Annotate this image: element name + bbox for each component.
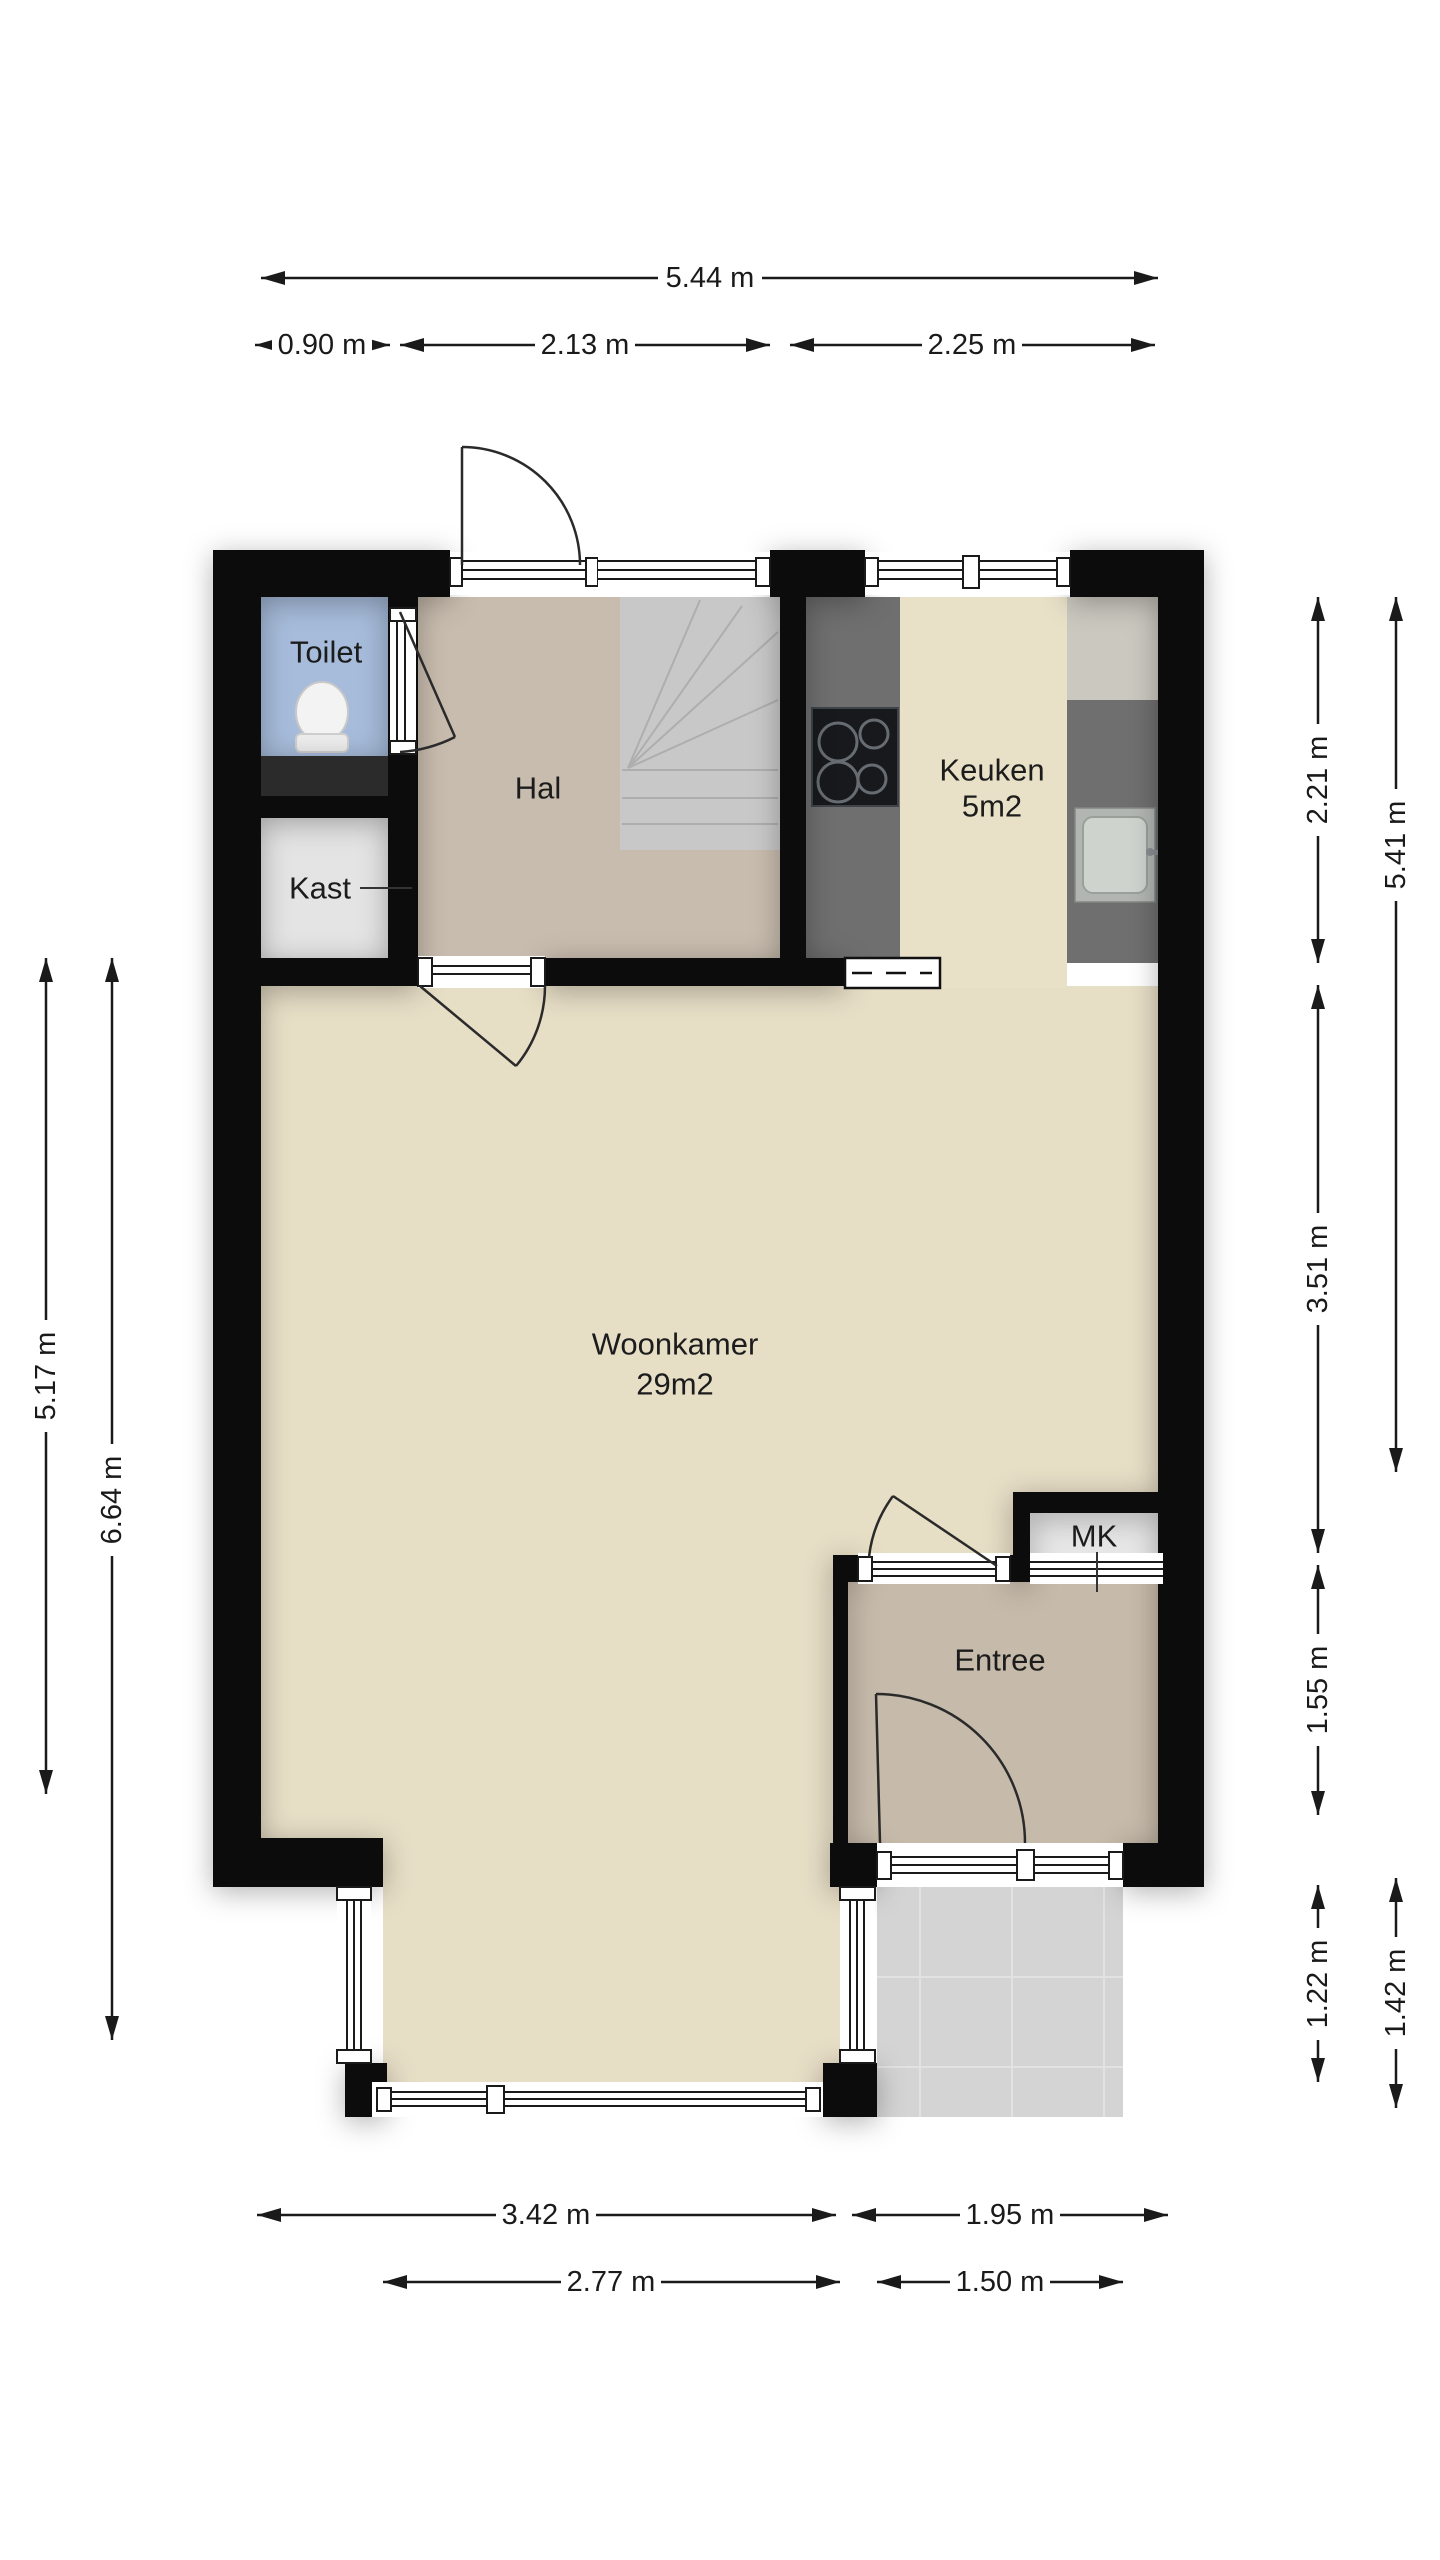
entree-front-door	[877, 1843, 1123, 1887]
floorplan-drawing: Toilet Hal Kast Keuken 5m2 Woonkamer 29m…	[0, 0, 1440, 2560]
keuken-window	[865, 552, 1070, 595]
label-woonkamer-area: 29m2	[636, 1367, 714, 1402]
extension-bottom-window	[372, 2082, 823, 2117]
hal-window	[598, 552, 770, 595]
svg-text:1.95 m: 1.95 m	[966, 2199, 1055, 2231]
front-door-opening	[450, 552, 598, 595]
patio	[877, 1887, 1123, 2117]
svg-text:2.13 m: 2.13 m	[541, 329, 630, 361]
room-entree	[848, 1582, 1158, 1843]
svg-text:5.17 m: 5.17 m	[30, 1332, 62, 1421]
building: Toilet Hal Kast Keuken 5m2 Woonkamer 29m…	[213, 447, 1204, 2117]
extension-left-window	[337, 1887, 371, 2063]
svg-text:1.22 m: 1.22 m	[1302, 1940, 1334, 2029]
sink-icon	[1075, 808, 1164, 902]
label-entree: Entree	[954, 1643, 1045, 1678]
stove-icon	[812, 708, 898, 806]
hal-door-opening	[418, 956, 545, 988]
label-keuken-area: 5m2	[962, 789, 1022, 824]
entree-interior-window	[858, 1553, 1010, 1584]
svg-text:5.41 m: 5.41 m	[1380, 801, 1412, 890]
room-woonkamer	[261, 986, 1158, 1492]
toilet-door	[390, 608, 416, 754]
stairs	[620, 597, 780, 850]
label-hal: Hal	[515, 771, 562, 806]
svg-text:5.44 m: 5.44 m	[666, 262, 755, 294]
dim-top-toilet: 0.90 m	[255, 327, 390, 363]
extension-right-window	[840, 1887, 875, 2063]
label-toilet: Toilet	[290, 635, 363, 670]
svg-text:1.50 m: 1.50 m	[956, 2266, 1045, 2298]
svg-text:1.42 m: 1.42 m	[1380, 1949, 1412, 2038]
svg-text:3.42 m: 3.42 m	[502, 2199, 591, 2231]
keuken-slider-door	[845, 958, 940, 988]
svg-text:2.25 m: 2.25 m	[928, 329, 1017, 361]
svg-text:6.64 m: 6.64 m	[96, 1456, 128, 1545]
toilet-icon	[296, 682, 348, 752]
cabinet-top-right	[1067, 597, 1158, 700]
floorplan: Toilet Hal Kast Keuken 5m2 Woonkamer 29m…	[0, 0, 1440, 2560]
svg-text:0.90 m: 0.90 m	[278, 329, 367, 361]
label-keuken: Keuken	[939, 753, 1044, 788]
label-mk: MK	[1071, 1519, 1118, 1554]
svg-text:3.51 m: 3.51 m	[1302, 1225, 1334, 1314]
svg-text:2.77 m: 2.77 m	[567, 2266, 656, 2298]
svg-text:2.21 m: 2.21 m	[1302, 736, 1334, 825]
svg-text:1.55 m: 1.55 m	[1302, 1646, 1334, 1735]
label-woonkamer: Woonkamer	[592, 1327, 759, 1362]
label-kast: Kast	[289, 871, 351, 906]
